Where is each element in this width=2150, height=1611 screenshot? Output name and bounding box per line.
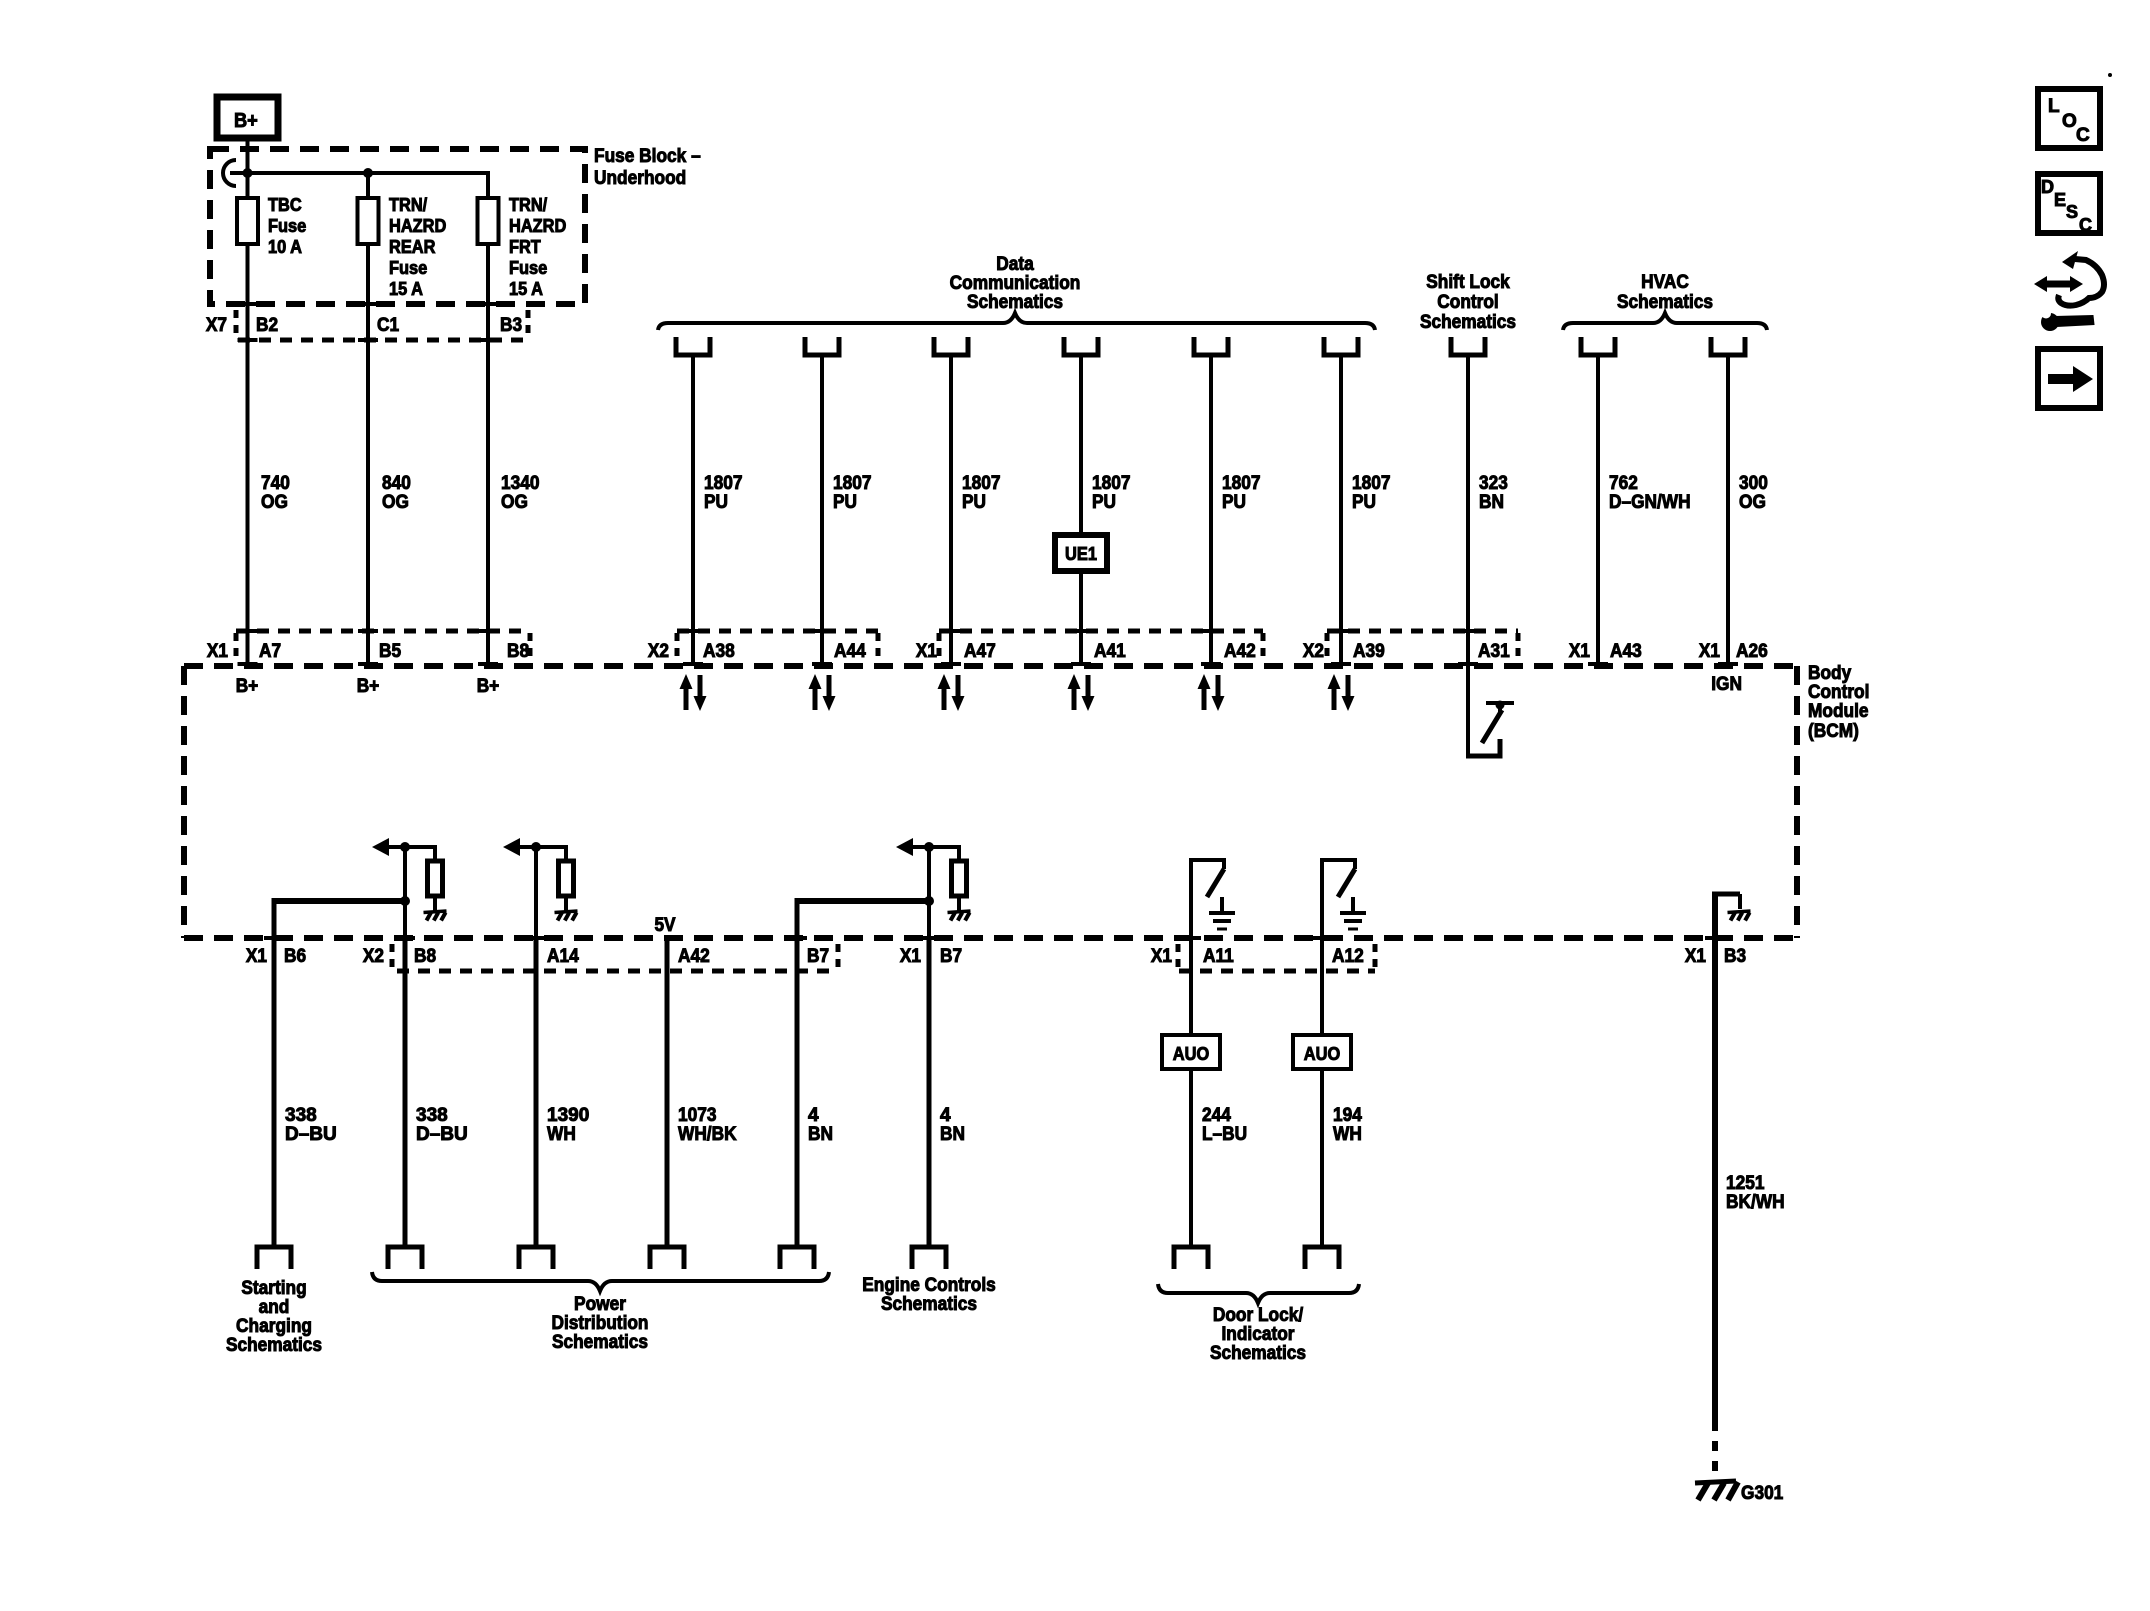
svg-text:Distribution: Distribution bbox=[552, 1313, 649, 1334]
svg-text:B3: B3 bbox=[1724, 946, 1746, 967]
svg-text:WH/BK: WH/BK bbox=[678, 1124, 737, 1145]
svg-text:Fuse: Fuse bbox=[268, 216, 306, 236]
svg-text:PU: PU bbox=[833, 492, 857, 513]
svg-text:D–BU: D–BU bbox=[416, 1124, 468, 1145]
svg-text:X1: X1 bbox=[1699, 641, 1720, 662]
svg-text:B7: B7 bbox=[807, 946, 829, 967]
svg-text:X1: X1 bbox=[1569, 641, 1590, 662]
svg-text:AUO: AUO bbox=[1173, 1044, 1209, 1064]
svg-text:PU: PU bbox=[962, 492, 986, 513]
svg-text:PU: PU bbox=[1352, 492, 1376, 513]
svg-text:B2: B2 bbox=[256, 315, 278, 336]
svg-text:B3: B3 bbox=[500, 315, 522, 336]
svg-text:X2: X2 bbox=[648, 641, 669, 662]
svg-text:C: C bbox=[2079, 215, 2092, 235]
svg-text:244: 244 bbox=[1202, 1105, 1231, 1126]
svg-text:D: D bbox=[2041, 177, 2054, 197]
svg-text:C: C bbox=[2076, 125, 2090, 146]
svg-text:Fuse Block –: Fuse Block – bbox=[594, 146, 701, 167]
svg-text:G301: G301 bbox=[1741, 1483, 1784, 1504]
svg-text:PU: PU bbox=[704, 492, 728, 513]
svg-text:PU: PU bbox=[1222, 492, 1246, 513]
svg-text:A11: A11 bbox=[1203, 946, 1234, 967]
svg-text:5V: 5V bbox=[654, 915, 675, 936]
svg-text:A7: A7 bbox=[259, 641, 281, 662]
svg-text:Schematics: Schematics bbox=[881, 1294, 977, 1315]
svg-text:Schematics: Schematics bbox=[1210, 1343, 1306, 1364]
svg-text:B8: B8 bbox=[414, 946, 436, 967]
svg-text:740: 740 bbox=[261, 473, 290, 494]
svg-text:A43: A43 bbox=[1610, 641, 1642, 662]
svg-text:Fuse: Fuse bbox=[509, 258, 547, 278]
svg-text:A14: A14 bbox=[547, 946, 579, 967]
svg-text:HAZRD: HAZRD bbox=[389, 216, 446, 236]
svg-text:1807: 1807 bbox=[1092, 473, 1131, 494]
svg-text:A42: A42 bbox=[678, 946, 710, 967]
svg-text:L–BU: L–BU bbox=[1202, 1124, 1247, 1145]
svg-text:(BCM): (BCM) bbox=[1808, 721, 1859, 742]
svg-text:4: 4 bbox=[808, 1105, 819, 1126]
svg-text:Power: Power bbox=[574, 1294, 626, 1315]
svg-text:Shift Lock: Shift Lock bbox=[1426, 272, 1510, 293]
svg-text:D–GN/WH: D–GN/WH bbox=[1609, 492, 1691, 513]
svg-text:HAZRD: HAZRD bbox=[509, 216, 566, 236]
svg-text:A42: A42 bbox=[1224, 641, 1256, 662]
svg-text:323: 323 bbox=[1479, 473, 1508, 494]
svg-text:PU: PU bbox=[1092, 492, 1116, 513]
svg-text:BN: BN bbox=[808, 1124, 833, 1145]
svg-text:1807: 1807 bbox=[1352, 473, 1391, 494]
svg-text:L: L bbox=[2048, 96, 2060, 117]
svg-text:FRT: FRT bbox=[509, 237, 541, 257]
svg-text:762: 762 bbox=[1609, 473, 1638, 494]
svg-text:338: 338 bbox=[416, 1105, 448, 1126]
svg-text:Schematics: Schematics bbox=[226, 1335, 322, 1356]
svg-text:X1: X1 bbox=[900, 946, 921, 967]
svg-text:Engine Controls: Engine Controls bbox=[862, 1275, 996, 1296]
svg-text:X1: X1 bbox=[1685, 946, 1706, 967]
svg-text:840: 840 bbox=[382, 473, 411, 494]
svg-text:BK/WH: BK/WH bbox=[1726, 1192, 1785, 1213]
svg-text:X1: X1 bbox=[1151, 946, 1172, 967]
svg-text:1073: 1073 bbox=[678, 1105, 717, 1126]
svg-text:B5: B5 bbox=[379, 641, 401, 662]
svg-text:A41: A41 bbox=[1094, 641, 1126, 662]
svg-text:WH: WH bbox=[547, 1124, 576, 1145]
svg-text:B8: B8 bbox=[507, 641, 529, 662]
svg-text:IGN: IGN bbox=[1711, 674, 1742, 695]
svg-text:Control: Control bbox=[1437, 292, 1498, 313]
svg-text:X2: X2 bbox=[363, 946, 384, 967]
svg-text:1390: 1390 bbox=[547, 1105, 589, 1126]
svg-text:Charging: Charging bbox=[236, 1316, 312, 1337]
svg-text:B7: B7 bbox=[940, 946, 962, 967]
svg-text:O: O bbox=[2062, 111, 2077, 132]
svg-text:Indicator: Indicator bbox=[1222, 1324, 1296, 1345]
svg-text:1807: 1807 bbox=[833, 473, 872, 494]
svg-text:TRN/: TRN/ bbox=[509, 195, 547, 215]
svg-text:Door Lock/: Door Lock/ bbox=[1213, 1305, 1304, 1326]
svg-text:TBC: TBC bbox=[268, 195, 302, 215]
svg-text:15 A: 15 A bbox=[509, 279, 543, 299]
svg-text:15 A: 15 A bbox=[389, 279, 423, 299]
svg-text:and: and bbox=[259, 1297, 290, 1318]
svg-text:338: 338 bbox=[285, 1105, 317, 1126]
svg-text:Module: Module bbox=[1808, 701, 1869, 722]
svg-text:UE1: UE1 bbox=[1065, 544, 1097, 564]
svg-text:Schematics: Schematics bbox=[552, 1332, 648, 1353]
svg-text:A47: A47 bbox=[964, 641, 996, 662]
svg-text:BN: BN bbox=[1479, 492, 1504, 513]
svg-text:A26: A26 bbox=[1736, 641, 1768, 662]
svg-text:TRN/: TRN/ bbox=[389, 195, 427, 215]
svg-text:4: 4 bbox=[940, 1105, 951, 1126]
svg-text:10 A: 10 A bbox=[268, 237, 302, 257]
svg-text:WH: WH bbox=[1333, 1124, 1362, 1145]
svg-text:1251: 1251 bbox=[1726, 1173, 1765, 1194]
svg-text:1340: 1340 bbox=[501, 473, 540, 494]
svg-text:OG: OG bbox=[382, 492, 409, 513]
svg-text:A38: A38 bbox=[703, 641, 735, 662]
svg-text:300: 300 bbox=[1739, 473, 1768, 494]
svg-text:Underhood: Underhood bbox=[594, 168, 686, 189]
svg-text:B+: B+ bbox=[234, 110, 258, 132]
svg-text:A44: A44 bbox=[834, 641, 866, 662]
svg-text:X1: X1 bbox=[207, 641, 228, 662]
svg-text:Communication: Communication bbox=[950, 273, 1081, 294]
svg-text:X1: X1 bbox=[246, 946, 267, 967]
svg-text:1807: 1807 bbox=[962, 473, 1001, 494]
svg-text:Schematics: Schematics bbox=[1420, 312, 1516, 333]
svg-text:AUO: AUO bbox=[1304, 1044, 1340, 1064]
svg-text:HVAC: HVAC bbox=[1641, 272, 1689, 293]
svg-text:E: E bbox=[2054, 190, 2066, 210]
svg-text:Fuse: Fuse bbox=[389, 258, 427, 278]
svg-text:C1: C1 bbox=[377, 315, 399, 336]
svg-text:OG: OG bbox=[501, 492, 528, 513]
svg-text:B+: B+ bbox=[236, 676, 259, 697]
svg-text:1807: 1807 bbox=[704, 473, 743, 494]
svg-text:X2: X2 bbox=[1303, 641, 1324, 662]
svg-text:B6: B6 bbox=[284, 946, 306, 967]
svg-text:A31: A31 bbox=[1478, 641, 1510, 662]
svg-text:REAR: REAR bbox=[389, 237, 435, 257]
svg-text:B+: B+ bbox=[357, 676, 380, 697]
svg-text:B+: B+ bbox=[477, 676, 500, 697]
svg-text:1807: 1807 bbox=[1222, 473, 1261, 494]
svg-text:194: 194 bbox=[1333, 1105, 1362, 1126]
svg-text:Control: Control bbox=[1808, 682, 1869, 703]
svg-text:BN: BN bbox=[940, 1124, 965, 1145]
svg-text:Starting: Starting bbox=[241, 1278, 306, 1299]
svg-text:OG: OG bbox=[1739, 492, 1766, 513]
svg-text:A12: A12 bbox=[1332, 946, 1364, 967]
svg-text:Data: Data bbox=[996, 254, 1034, 275]
svg-text:OG: OG bbox=[261, 492, 288, 513]
svg-text:Body: Body bbox=[1808, 663, 1852, 684]
svg-text:X1: X1 bbox=[916, 641, 937, 662]
svg-text:X7: X7 bbox=[206, 315, 227, 336]
svg-text:D–BU: D–BU bbox=[285, 1124, 337, 1145]
svg-text:A39: A39 bbox=[1353, 641, 1385, 662]
svg-text:S: S bbox=[2066, 202, 2078, 222]
